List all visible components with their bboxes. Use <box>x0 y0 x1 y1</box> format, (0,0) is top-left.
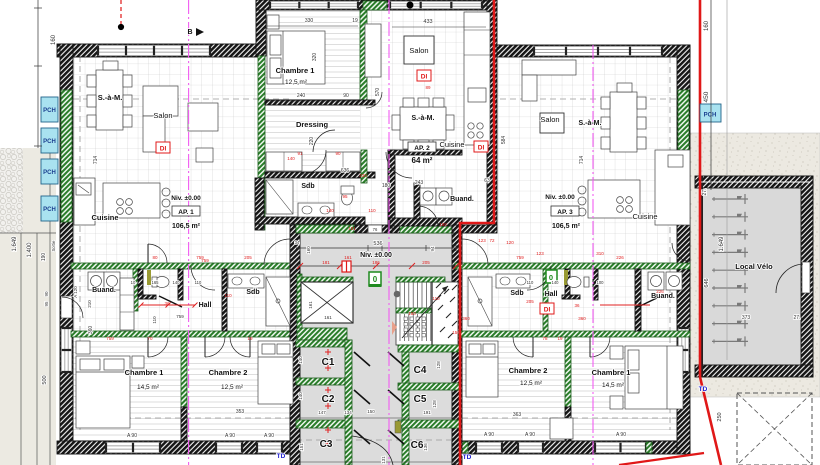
svg-text:19: 19 <box>557 336 563 341</box>
svg-text:433: 433 <box>423 19 432 25</box>
svg-text:150: 150 <box>367 409 375 414</box>
svg-text:191: 191 <box>423 410 431 415</box>
svg-text:Chambre 2: Chambre 2 <box>209 368 248 377</box>
svg-text:Chambre 1: Chambre 1 <box>276 66 315 75</box>
svg-text:110: 110 <box>432 296 440 301</box>
svg-text:12,5 m²: 12,5 m² <box>221 384 244 391</box>
svg-text:320: 320 <box>312 53 318 62</box>
svg-text:363: 363 <box>513 412 522 418</box>
svg-text:128: 128 <box>436 361 441 369</box>
svg-text:140: 140 <box>326 208 334 213</box>
svg-text:A 90: A 90 <box>616 432 626 438</box>
svg-text:Cuisine: Cuisine <box>91 213 118 222</box>
svg-text:1.400: 1.400 <box>27 242 33 258</box>
svg-text:759: 759 <box>106 336 114 341</box>
svg-text:Salon: Salon <box>409 46 428 55</box>
svg-text:136: 136 <box>423 443 428 451</box>
svg-text:A 90: A 90 <box>127 433 137 439</box>
svg-text:95: 95 <box>342 194 348 199</box>
svg-text:C1: C1 <box>322 357 335 368</box>
svg-text:Hall: Hall <box>545 291 558 298</box>
svg-text:147: 147 <box>318 410 326 415</box>
svg-text:128: 128 <box>432 400 437 408</box>
svg-text:78: 78 <box>542 336 548 341</box>
svg-text:161: 161 <box>324 315 332 320</box>
svg-text:Sdb: Sdb <box>510 290 523 297</box>
svg-text:161: 161 <box>308 301 313 309</box>
svg-text:90: 90 <box>335 151 341 156</box>
svg-text:Sortie: Sortie <box>51 240 56 252</box>
svg-text:131: 131 <box>381 456 386 464</box>
svg-text:C5: C5 <box>414 394 427 405</box>
svg-text:Niv. ±0.00: Niv. ±0.00 <box>545 194 575 201</box>
svg-text:160: 160 <box>51 34 57 45</box>
svg-text:220: 220 <box>309 137 315 146</box>
svg-text:714: 714 <box>93 156 99 165</box>
svg-text:180: 180 <box>382 183 391 189</box>
svg-text:134: 134 <box>344 410 352 415</box>
svg-text:226: 226 <box>656 289 664 294</box>
svg-text:AP. 2: AP. 2 <box>414 145 430 152</box>
svg-text:Salon: Salon <box>153 111 172 120</box>
svg-text:PCH: PCH <box>43 108 56 114</box>
svg-text:12,5 m²: 12,5 m² <box>285 79 308 86</box>
svg-text:91: 91 <box>297 151 303 156</box>
svg-text:500: 500 <box>42 375 48 384</box>
svg-text:C3: C3 <box>320 439 333 450</box>
svg-text:12,5 m²: 12,5 m² <box>520 380 543 387</box>
svg-text:250: 250 <box>717 412 723 421</box>
svg-text:1.649: 1.649 <box>719 236 725 252</box>
svg-text:94: 94 <box>430 246 435 252</box>
svg-text:19: 19 <box>352 18 358 24</box>
svg-text:S.-à-M.: S.-à-M. <box>98 93 123 102</box>
svg-text:123: 123 <box>536 251 544 256</box>
svg-text:150: 150 <box>452 330 460 335</box>
svg-text:PCH: PCH <box>43 139 56 145</box>
svg-text:36: 36 <box>574 303 580 308</box>
svg-text:PCH: PCH <box>43 170 56 176</box>
svg-text:150: 150 <box>408 311 416 316</box>
svg-text:PCH: PCH <box>704 113 717 119</box>
svg-text:89: 89 <box>425 85 431 90</box>
svg-text:95: 95 <box>44 301 49 307</box>
svg-text:Local Vélo: Local Vélo <box>735 262 773 271</box>
svg-text:140: 140 <box>552 280 560 285</box>
svg-text:536: 536 <box>373 241 382 247</box>
svg-text:Hall: Hall <box>199 302 212 309</box>
svg-text:226: 226 <box>616 255 624 260</box>
svg-text:AP. 1: AP. 1 <box>178 209 194 216</box>
svg-text:584: 584 <box>501 136 507 145</box>
svg-text:120: 120 <box>506 240 514 245</box>
svg-text:160: 160 <box>704 20 710 31</box>
svg-text:636: 636 <box>341 168 350 174</box>
svg-text:S.-à-M.: S.-à-M. <box>579 120 602 127</box>
svg-text:DI: DI <box>544 307 551 314</box>
svg-text:205: 205 <box>422 260 430 265</box>
svg-text:10: 10 <box>131 280 136 285</box>
svg-text:A 90: A 90 <box>484 432 494 438</box>
svg-text:C4: C4 <box>414 365 427 376</box>
svg-text:151: 151 <box>299 443 304 451</box>
svg-text:DI: DI <box>160 146 167 153</box>
svg-text:140: 140 <box>298 356 303 364</box>
svg-text:Chambre 2: Chambre 2 <box>509 366 548 375</box>
svg-text:34: 34 <box>295 240 300 245</box>
svg-text:14,5 m²: 14,5 m² <box>137 384 160 391</box>
svg-text:106,5 m²: 106,5 m² <box>172 223 201 230</box>
svg-text:TD: TD <box>463 454 472 461</box>
svg-text:450: 450 <box>703 91 710 102</box>
svg-text:DI: DI <box>421 74 428 81</box>
svg-text:165: 165 <box>152 280 160 285</box>
svg-text:310: 310 <box>596 251 604 256</box>
svg-text:180: 180 <box>439 222 447 227</box>
svg-text:A 90: A 90 <box>264 433 274 439</box>
svg-text:C2: C2 <box>322 394 335 405</box>
svg-text:Niv. ±0.00: Niv. ±0.00 <box>360 252 392 259</box>
svg-text:181: 181 <box>322 260 330 265</box>
svg-text:190: 190 <box>41 253 47 262</box>
svg-text:140: 140 <box>298 392 303 400</box>
svg-text:B: B <box>187 29 192 36</box>
svg-text:64 m²: 64 m² <box>412 156 433 165</box>
svg-text:A 90: A 90 <box>525 432 535 438</box>
svg-text:160: 160 <box>306 246 311 254</box>
svg-text:161: 161 <box>344 255 352 260</box>
svg-text:110: 110 <box>368 208 376 213</box>
svg-text:759: 759 <box>516 255 524 260</box>
svg-text:360: 360 <box>88 326 94 335</box>
svg-text:TD: TD <box>277 453 286 460</box>
svg-text:110: 110 <box>152 316 157 324</box>
svg-text:Sdb: Sdb <box>301 183 314 190</box>
svg-text:Dressing: Dressing <box>296 120 329 129</box>
svg-text:646: 646 <box>704 278 710 287</box>
svg-text:S.-à-M.: S.-à-M. <box>412 115 435 122</box>
svg-text:Buand.: Buand. <box>651 293 675 300</box>
svg-text:759: 759 <box>176 314 184 319</box>
svg-text:186: 186 <box>372 260 380 265</box>
svg-text:Sdb: Sdb <box>246 289 259 296</box>
svg-text:90: 90 <box>44 291 49 297</box>
svg-text:70: 70 <box>147 336 153 341</box>
svg-text:80: 80 <box>152 255 158 260</box>
svg-text:205: 205 <box>526 299 534 304</box>
svg-text:PCH: PCH <box>43 207 56 213</box>
svg-text:DI: DI <box>478 145 485 152</box>
svg-text:360: 360 <box>462 316 470 321</box>
svg-text:243: 243 <box>415 180 424 186</box>
svg-text:1.649: 1.649 <box>12 236 18 252</box>
svg-text:240: 240 <box>297 93 306 99</box>
svg-text:373: 373 <box>742 315 751 321</box>
svg-text:100: 100 <box>597 280 605 285</box>
svg-text:63: 63 <box>484 178 490 184</box>
svg-text:110: 110 <box>224 293 232 298</box>
svg-text:Chambre 1: Chambre 1 <box>125 368 164 377</box>
svg-text:759: 759 <box>201 258 209 263</box>
svg-text:181: 181 <box>348 226 356 231</box>
svg-text:27.: 27. <box>702 189 708 196</box>
svg-text:AP. 3: AP. 3 <box>557 209 573 216</box>
svg-text:353: 353 <box>236 409 245 415</box>
svg-text:TD: TD <box>699 386 708 393</box>
svg-text:A 90: A 90 <box>225 433 235 439</box>
svg-text:110: 110 <box>527 280 534 285</box>
svg-text:Cuisine: Cuisine <box>632 212 657 221</box>
svg-text:Salon: Salon <box>540 115 559 124</box>
svg-text:140: 140 <box>287 156 295 161</box>
svg-text:714: 714 <box>579 156 585 165</box>
svg-text:Chambre 1: Chambre 1 <box>592 368 631 377</box>
svg-text:360: 360 <box>578 316 586 321</box>
svg-text:210: 210 <box>87 300 92 308</box>
svg-text:72: 72 <box>489 238 495 243</box>
svg-text:Niv. ±0.00: Niv. ±0.00 <box>171 195 201 202</box>
svg-text:14,5 m²: 14,5 m² <box>602 382 625 389</box>
svg-text:330: 330 <box>305 18 314 24</box>
svg-text:205: 205 <box>244 255 252 260</box>
svg-text:Buand.: Buand. <box>92 287 116 294</box>
svg-text:110: 110 <box>195 280 202 285</box>
svg-text:0: 0 <box>373 275 378 284</box>
svg-text:19: 19 <box>247 336 253 341</box>
svg-text:230: 230 <box>359 173 367 178</box>
svg-text:C6: C6 <box>411 440 424 451</box>
svg-text:123: 123 <box>478 238 486 243</box>
svg-text:A 120: A 120 <box>73 286 78 298</box>
svg-text:90: 90 <box>343 93 349 99</box>
svg-text:27.: 27. <box>794 315 801 321</box>
svg-text:570: 570 <box>375 88 381 97</box>
svg-text:Cuisine: Cuisine <box>439 140 464 149</box>
svg-text:106,5 m²: 106,5 m² <box>552 223 581 230</box>
svg-text:76: 76 <box>373 227 378 232</box>
svg-text:140: 140 <box>173 280 181 285</box>
svg-text:Buand.: Buand. <box>450 196 474 203</box>
